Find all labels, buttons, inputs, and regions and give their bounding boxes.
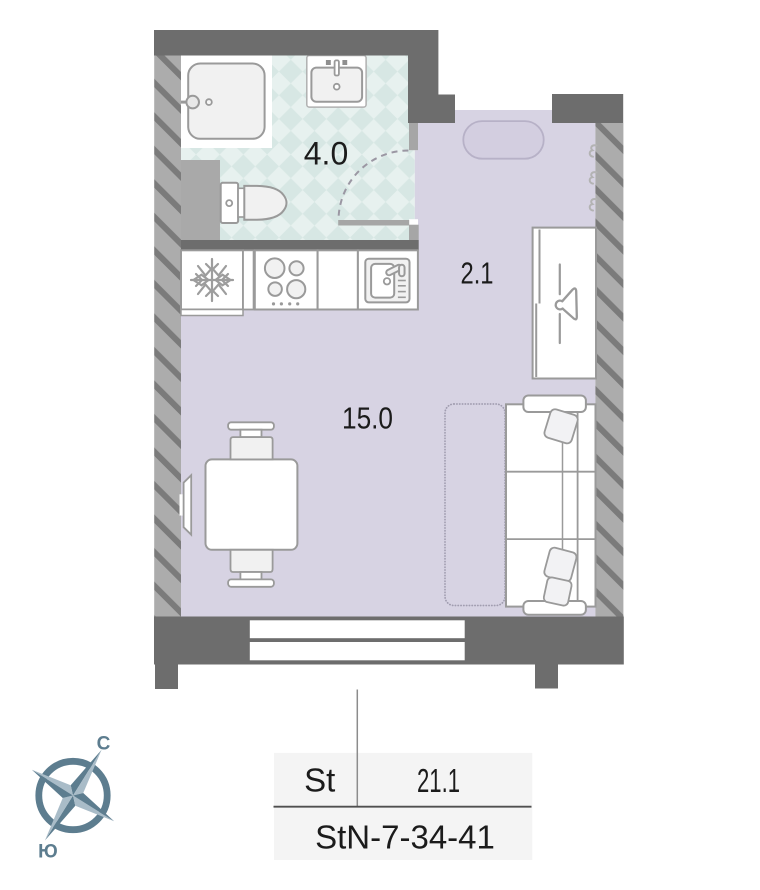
svg-text:Ю: Ю <box>38 842 58 863</box>
svg-text:StN-7-34-41: StN-7-34-41 <box>315 819 495 856</box>
svg-text:15.0: 15.0 <box>342 401 393 436</box>
svg-text:С: С <box>97 734 111 755</box>
svg-text:2.1: 2.1 <box>461 255 494 290</box>
svg-text:St: St <box>304 762 335 799</box>
svg-text:21.1: 21.1 <box>417 762 460 799</box>
svg-text:4.0: 4.0 <box>304 136 348 172</box>
